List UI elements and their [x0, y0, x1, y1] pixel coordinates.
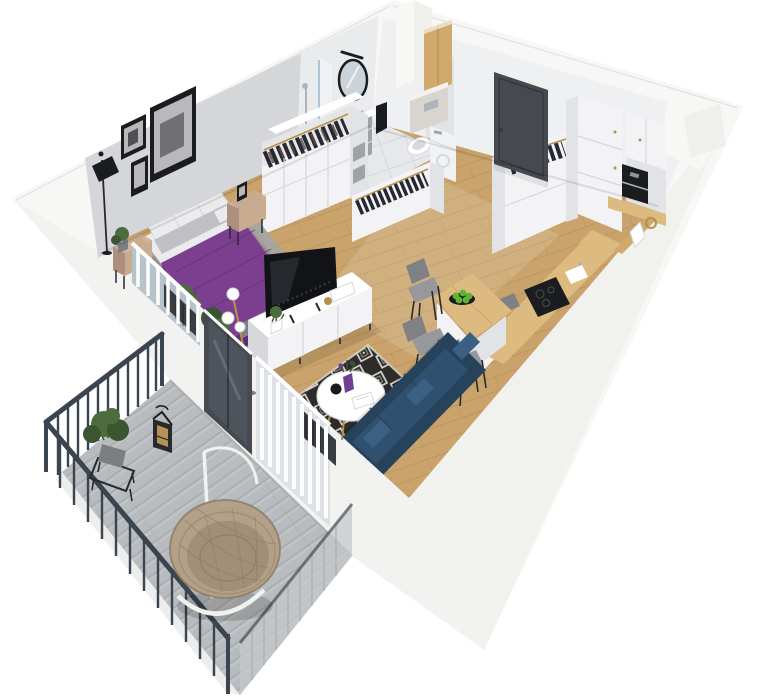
closet-side — [430, 162, 444, 214]
entrance-door — [494, 72, 548, 188]
floorplan-render-stage: Isometric 3D cutaway floor-plan render o… — [0, 0, 757, 700]
tall-cabinet-column-a — [566, 96, 622, 232]
brass-cup — [324, 297, 332, 305]
door-handle — [499, 128, 503, 132]
apartment-3d-floorplan: Isometric 3D cutaway floor-plan render o… — [0, 0, 757, 700]
black-teapot — [331, 384, 342, 395]
shower-head — [302, 83, 308, 89]
